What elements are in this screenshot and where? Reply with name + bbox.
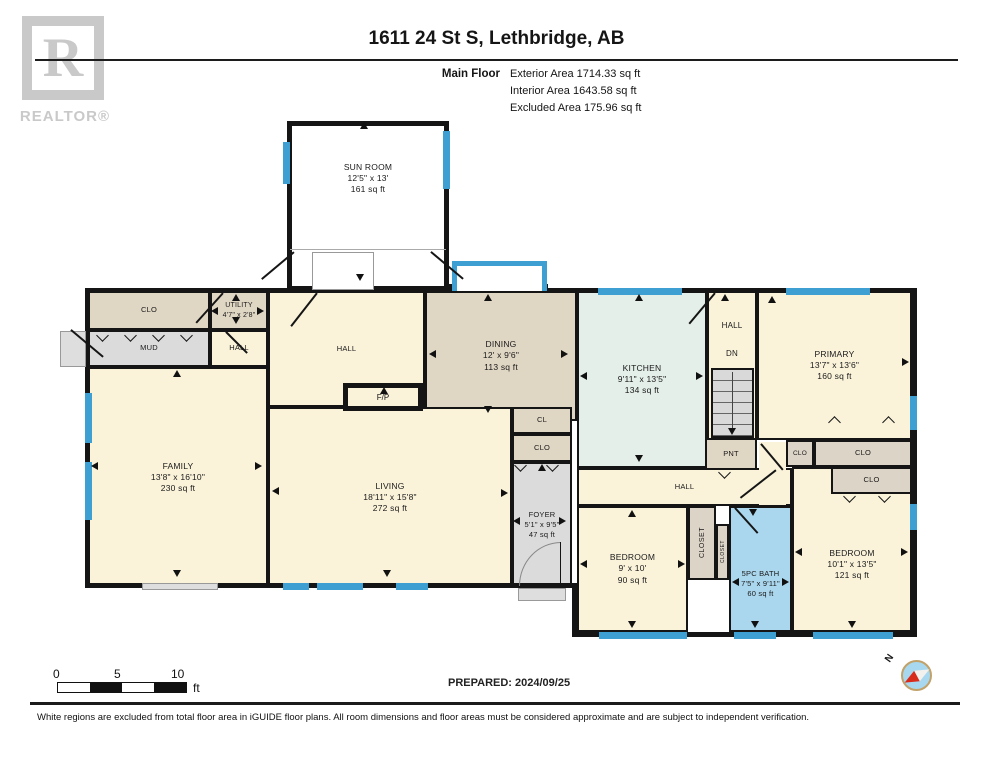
floor-name-label: Main Floor bbox=[375, 68, 500, 80]
room-label: CLOSET bbox=[699, 527, 706, 558]
scale-segment bbox=[58, 683, 90, 692]
scale-bar bbox=[57, 682, 187, 693]
interior-area-text: Interior Area 1643.58 sq ft bbox=[510, 85, 750, 97]
dimension-arrow-icon bbox=[484, 294, 492, 301]
dimension-arrow-icon bbox=[795, 548, 802, 556]
scale-unit-label: ft bbox=[193, 681, 200, 695]
dimension-arrow-icon bbox=[902, 358, 909, 366]
room-label: FOYER5'1" x 9'5"47 sq ft bbox=[525, 510, 560, 539]
excluded-area-text: Excluded Area 175.96 sq ft bbox=[510, 102, 750, 114]
stairs-direction-line bbox=[732, 372, 733, 428]
dimension-arrow-icon bbox=[732, 578, 739, 586]
room-label: PNT bbox=[723, 450, 739, 459]
room-closet-a: CLOSET bbox=[688, 506, 716, 580]
dimension-arrow-icon bbox=[255, 462, 262, 470]
disclaimer-text: White regions are excluded from total fl… bbox=[37, 712, 967, 723]
room-label: CLOSET bbox=[720, 540, 726, 563]
dimension-arrow-icon bbox=[383, 570, 391, 577]
room-label: CLO bbox=[855, 449, 871, 458]
scale-tick-0: 0 bbox=[53, 667, 60, 681]
room-label: DINING12' x 9'6"113 sq ft bbox=[483, 339, 519, 372]
room-family: FAMILY13'8" x 16'10"230 sq ft bbox=[88, 367, 268, 588]
room-pantry: PNT bbox=[705, 438, 757, 470]
window bbox=[813, 632, 893, 639]
dimension-arrow-icon bbox=[559, 517, 566, 525]
dimension-arrow-icon bbox=[751, 621, 759, 628]
step bbox=[60, 331, 86, 367]
dimension-arrow-icon bbox=[580, 372, 587, 380]
compass-north-label: N bbox=[883, 652, 896, 664]
window bbox=[910, 504, 917, 530]
room-label: PRIMARY13'7" x 13'6"160 sq ft bbox=[810, 349, 859, 382]
room-label: HALL bbox=[337, 345, 357, 354]
dimension-arrow-icon bbox=[173, 370, 181, 377]
room-label: KITCHEN9'11" x 13'5"134 sq ft bbox=[618, 363, 667, 396]
stairs-down-label: DN bbox=[707, 349, 757, 358]
window bbox=[283, 583, 309, 590]
dimension-arrow-icon bbox=[635, 455, 643, 462]
scale-segment bbox=[122, 683, 154, 692]
dimension-arrow-icon bbox=[678, 560, 685, 568]
title-divider bbox=[35, 59, 958, 61]
room-label: LIVING18'11" x 15'8"272 sq ft bbox=[363, 481, 417, 514]
scale-segment bbox=[154, 683, 186, 692]
dimension-arrow-icon bbox=[782, 578, 789, 586]
room-label: CLO bbox=[534, 444, 550, 453]
compass-icon bbox=[901, 660, 932, 691]
floor-plan-page: R REALTOR® 1611 24 St S, Lethbridge, AB … bbox=[0, 0, 993, 768]
exterior-area-text: Exterior Area 1714.33 sq ft bbox=[510, 68, 750, 80]
room-closet-r2: CLO bbox=[814, 440, 912, 467]
realtor-logo-text: REALTOR® bbox=[4, 108, 126, 125]
dimension-arrow-icon bbox=[232, 294, 240, 301]
window bbox=[396, 583, 428, 590]
wall bbox=[912, 288, 917, 637]
dimension-arrow-icon bbox=[721, 294, 729, 301]
wall bbox=[572, 588, 577, 637]
page-title: 1611 24 St S, Lethbridge, AB bbox=[0, 28, 993, 50]
room-label: CLO bbox=[863, 476, 879, 485]
room-bedroom-mid: BEDROOM9' x 10'90 sq ft bbox=[577, 506, 688, 632]
dimension-arrow-icon bbox=[173, 570, 181, 577]
dimension-arrow-icon bbox=[429, 350, 436, 358]
dimension-arrow-icon bbox=[380, 387, 388, 394]
dimension-arrow-icon bbox=[356, 274, 364, 281]
window bbox=[85, 393, 92, 443]
dimension-arrow-icon bbox=[360, 122, 368, 129]
window bbox=[599, 632, 687, 639]
room-closet-b: CLOSET bbox=[716, 524, 729, 580]
dimension-arrow-icon bbox=[848, 621, 856, 628]
dimension-arrow-icon bbox=[635, 294, 643, 301]
room-closet-r1: CLO bbox=[786, 440, 814, 467]
window bbox=[85, 462, 92, 520]
room-label: CLO bbox=[793, 450, 807, 457]
sunroom-divider bbox=[290, 249, 446, 250]
prepared-date-text: PREPARED: 2024/09/25 bbox=[448, 677, 570, 689]
dimension-arrow-icon bbox=[211, 307, 218, 315]
room-closet-top-left: CLO bbox=[88, 291, 210, 330]
room-closet-r3: CLO bbox=[831, 467, 912, 494]
room-closet-foyer: CLO bbox=[512, 434, 572, 462]
room-label: CL bbox=[537, 416, 547, 425]
dimension-arrow-icon bbox=[901, 548, 908, 556]
step bbox=[142, 583, 218, 590]
dimension-arrow-icon bbox=[696, 372, 703, 380]
dimension-arrow-icon bbox=[91, 462, 98, 470]
room-kitchen: KITCHEN9'11" x 13'5"134 sq ft bbox=[577, 291, 707, 468]
dimension-arrow-icon bbox=[628, 621, 636, 628]
window bbox=[317, 583, 363, 590]
room-label: BEDROOM9' x 10'90 sq ft bbox=[610, 552, 655, 585]
room-label: MUD bbox=[140, 344, 158, 353]
room-label: FAMILY13'8" x 16'10"230 sq ft bbox=[151, 461, 205, 494]
dimension-arrow-icon bbox=[257, 307, 264, 315]
dimension-arrow-icon bbox=[580, 560, 587, 568]
dimension-arrow-icon bbox=[501, 489, 508, 497]
bay-window bbox=[452, 261, 547, 291]
room-label: SUN ROOM12'5" x 13'161 sq ft bbox=[344, 162, 392, 195]
dimension-arrow-icon bbox=[538, 464, 546, 471]
stairs-down-arrow-icon bbox=[728, 428, 736, 435]
scale-tick-10: 10 bbox=[171, 667, 184, 681]
dimension-arrow-icon bbox=[484, 406, 492, 413]
dimension-arrow-icon bbox=[561, 350, 568, 358]
window bbox=[786, 288, 870, 295]
dimension-arrow-icon bbox=[272, 487, 279, 495]
room-dining: DINING12' x 9'6"113 sq ft bbox=[425, 291, 577, 421]
room-hall-mud: HALL bbox=[210, 330, 268, 367]
scale-tick-5: 5 bbox=[114, 667, 121, 681]
window bbox=[734, 632, 776, 639]
window bbox=[910, 396, 917, 430]
stair-hall-label: HALL bbox=[707, 321, 757, 330]
footer-divider bbox=[30, 702, 960, 705]
entry-door-leaf bbox=[560, 542, 561, 587]
dimension-arrow-icon bbox=[513, 517, 520, 525]
sunroom-step bbox=[312, 252, 374, 290]
room-label: CLO bbox=[141, 306, 157, 315]
step bbox=[518, 588, 566, 601]
dimension-arrow-icon bbox=[628, 510, 636, 517]
dimension-arrow-icon bbox=[232, 317, 240, 324]
scale-segment bbox=[90, 683, 122, 692]
room-label: 5PC BATH7'5" x 9'11"60 sq ft bbox=[741, 569, 780, 598]
room-label: BEDROOM10'1" x 13'5"121 sq ft bbox=[827, 548, 876, 581]
dimension-arrow-icon bbox=[749, 509, 757, 516]
room-cl: CL bbox=[512, 407, 572, 434]
window bbox=[283, 142, 290, 184]
room-bath: 5PC BATH7'5" x 9'11"60 sq ft bbox=[729, 506, 792, 632]
window bbox=[443, 131, 450, 189]
room-living: LIVING18'11" x 15'8"272 sq ft bbox=[268, 407, 512, 588]
wall bbox=[85, 288, 290, 293]
dimension-arrow-icon bbox=[768, 296, 776, 303]
compass-needle bbox=[901, 664, 931, 688]
room-label: HALL bbox=[675, 483, 695, 492]
